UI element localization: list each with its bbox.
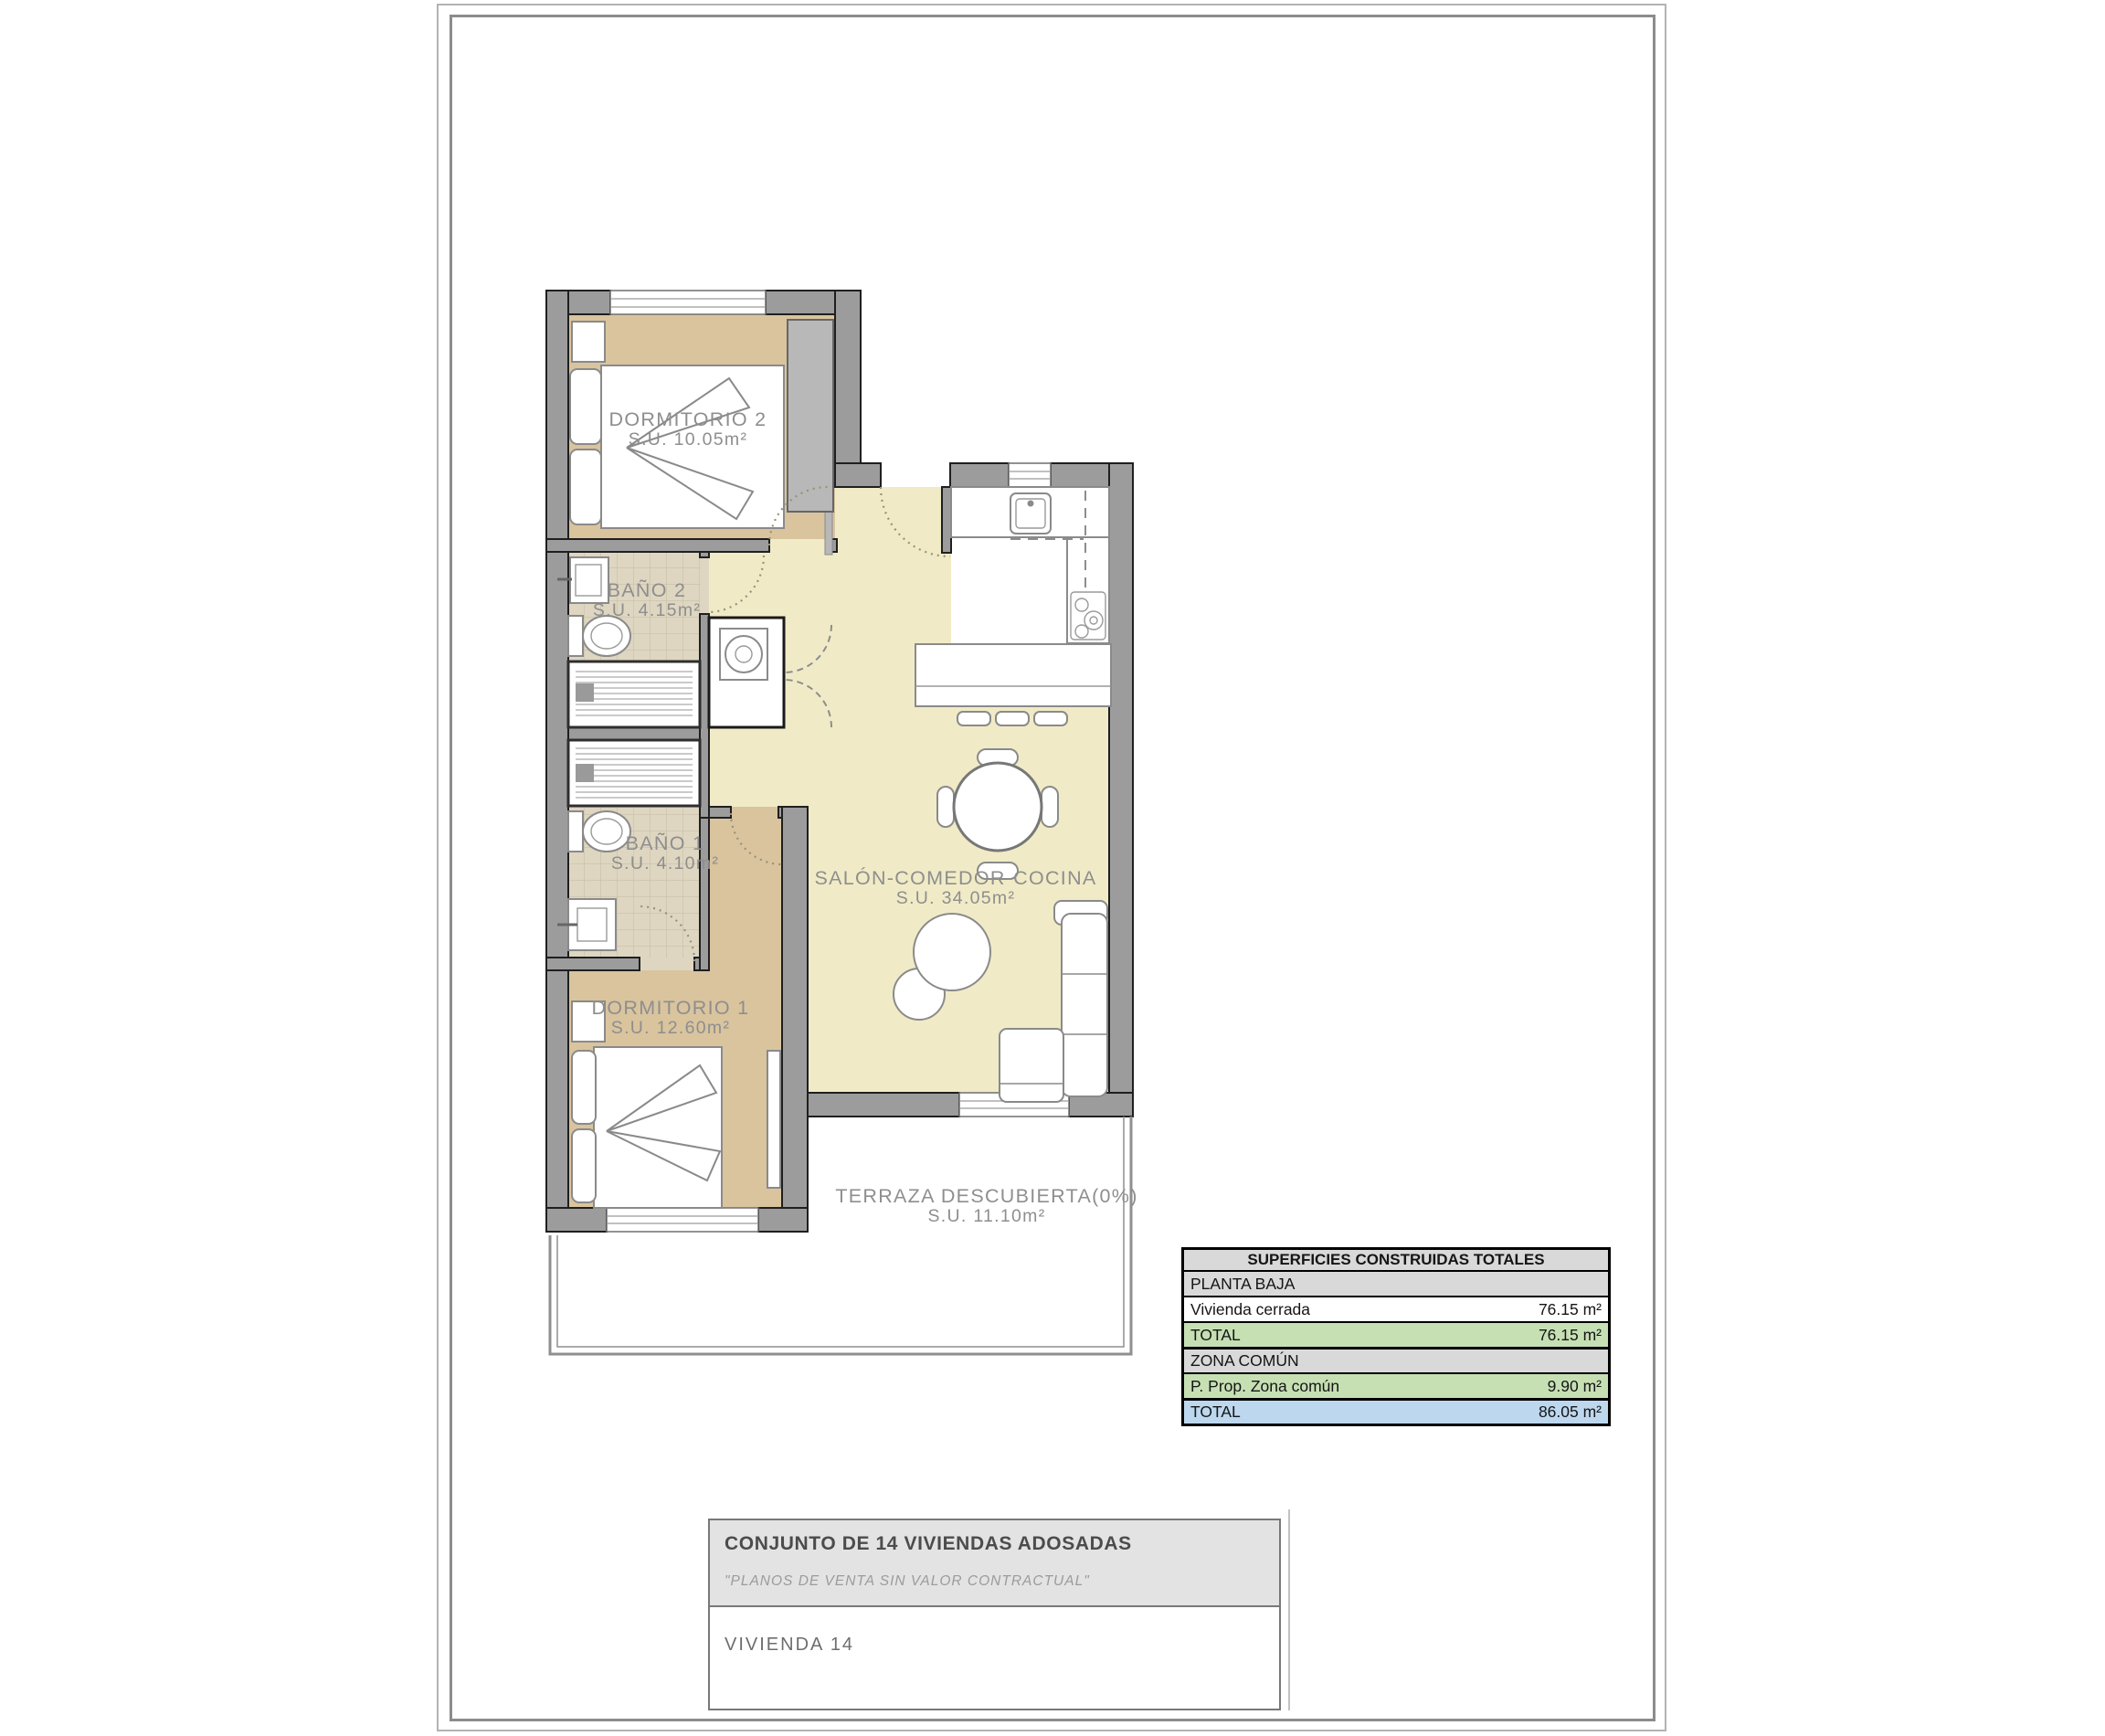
areas-table: SUPERFICIES CONSTRUIDAS TOTALES PLANTA B…	[1181, 1247, 1611, 1426]
label-dormitorio-1: DORMITORIO 1 S.U. 12.60m²	[592, 997, 750, 1039]
label-terraza: TERRAZA DESCUBIERTA(0%) S.U. 11.10m²	[835, 1185, 1137, 1227]
bano1-door-threshold	[640, 958, 694, 970]
window-dormitorio-2	[610, 291, 766, 314]
table-row: TOTAL 86.05 m²	[1184, 1398, 1608, 1424]
title-block-header: CONJUNTO DE 14 VIVIENDAS ADOSADAS "PLANO…	[710, 1520, 1279, 1607]
label-salon: SALÓN-COMEDOR-COCINA S.U. 34.05m²	[814, 867, 1096, 909]
areas-table-header: SUPERFICIES CONSTRUIDAS TOTALES	[1184, 1250, 1608, 1270]
toilet-bano-2	[568, 616, 583, 656]
plan-sheet: { "plan": { "rooms": [ {"id": "dormitori…	[0, 0, 2105, 1736]
label-bano-2: BAÑO 2 S.U. 4.15m²	[593, 579, 701, 621]
bar-stool	[996, 712, 1029, 725]
wardrobe-dormitorio-2	[788, 320, 833, 512]
bano2-door-threshold	[700, 556, 709, 614]
shower-drain	[576, 683, 594, 702]
table-row: Vivienda cerrada 76.15 m²	[1184, 1296, 1608, 1321]
project-title: CONJUNTO DE 14 VIVIENDAS ADOSADAS	[725, 1533, 1264, 1555]
nightstand	[572, 322, 605, 362]
table-row: TOTAL 76.15 m²	[1184, 1321, 1608, 1347]
window-kitchen	[1009, 463, 1051, 487]
kitchen-peninsula	[915, 644, 1111, 706]
unit-label: VIVIENDA 14	[710, 1607, 1279, 1656]
dorm2-door-threshold	[769, 539, 828, 552]
title-block-shadow-line	[1288, 1509, 1290, 1710]
kitchen-divider-wall	[942, 487, 951, 553]
bar-stool	[1034, 712, 1067, 725]
table-row: ZONA COMÚN	[1184, 1347, 1608, 1372]
dorm1-door-threshold	[731, 807, 778, 818]
bar-stool	[957, 712, 990, 725]
title-block: CONJUNTO DE 14 VIVIENDAS ADOSADAS "PLANO…	[708, 1519, 1281, 1710]
table-row: PLANTA BAJA	[1184, 1270, 1608, 1296]
sofa-chaise	[1000, 1029, 1063, 1102]
label-bano-1: BAÑO 1 S.U. 4.10m²	[611, 832, 719, 874]
dining-chair	[1042, 787, 1058, 827]
wardrobe-dormitorio-1	[767, 1051, 780, 1188]
dining-chair	[937, 787, 954, 827]
toilet-bano-1	[568, 811, 583, 852]
label-dormitorio-2: DORMITORIO 2 S.U. 10.05m²	[609, 408, 767, 450]
table-row: P. Prop. Zona común 9.90 m²	[1184, 1372, 1608, 1398]
disclaimer-text: "PLANOS DE VENTA SIN VALOR CONTRACTUAL"	[725, 1573, 1264, 1590]
window-dormitorio-1	[607, 1208, 758, 1232]
shower-drain	[576, 764, 594, 782]
pouf-large	[914, 914, 990, 990]
